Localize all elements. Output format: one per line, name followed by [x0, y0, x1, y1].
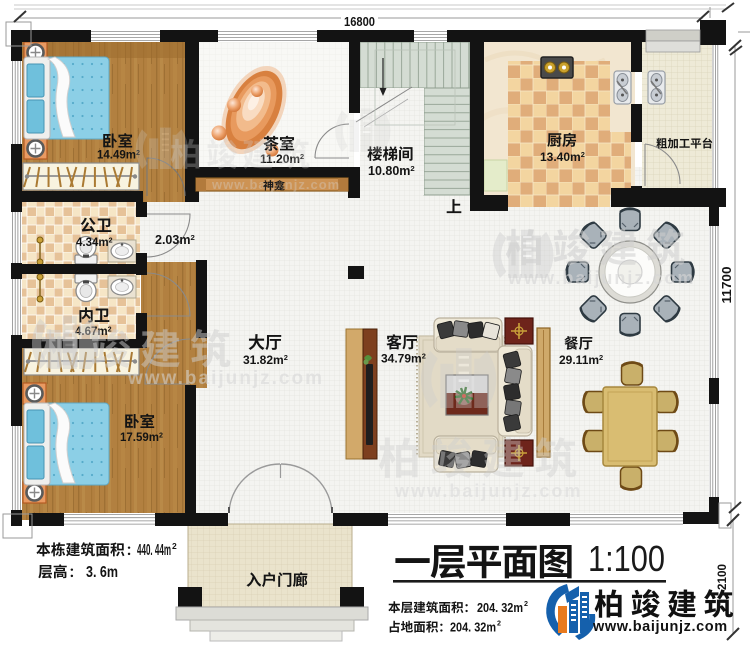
- svg-text:31.82m2: 31.82m2: [243, 353, 288, 367]
- svg-text:204. 32m: 204. 32m: [477, 600, 523, 615]
- svg-text:204. 32m: 204. 32m: [450, 620, 496, 635]
- svg-text:2: 2: [497, 620, 501, 628]
- svg-text:3. 6m: 3. 6m: [86, 564, 118, 581]
- svg-text:2100: 2100: [717, 564, 729, 590]
- svg-text:www.baijunjz.com: www.baijunjz.com: [592, 619, 728, 635]
- svg-text:www.baijunjz.com: www.baijunjz.com: [394, 481, 582, 501]
- svg-text:2: 2: [172, 541, 177, 551]
- svg-text:10.80m2: 10.80m2: [368, 164, 415, 178]
- svg-text:34.79m2: 34.79m2: [381, 352, 426, 366]
- svg-text:440. 44m: 440. 44m: [137, 542, 171, 559]
- svg-text:www.baijunjz.com: www.baijunjz.com: [127, 368, 324, 389]
- svg-text:14.49m2: 14.49m2: [97, 149, 140, 162]
- svg-text:13.40m2: 13.40m2: [540, 150, 585, 164]
- svg-text:16800: 16800: [344, 14, 375, 29]
- svg-text:2.03m2: 2.03m2: [155, 233, 195, 247]
- svg-text:17.59m2: 17.59m2: [120, 431, 163, 444]
- svg-text:11700: 11700: [720, 266, 734, 303]
- svg-text:2: 2: [524, 600, 528, 608]
- svg-text:1:100: 1:100: [588, 538, 665, 579]
- svg-text:www.baijunjz.com: www.baijunjz.com: [507, 268, 695, 288]
- svg-text:4.34m2: 4.34m2: [76, 236, 113, 249]
- svg-text:29.11m2: 29.11m2: [559, 353, 603, 367]
